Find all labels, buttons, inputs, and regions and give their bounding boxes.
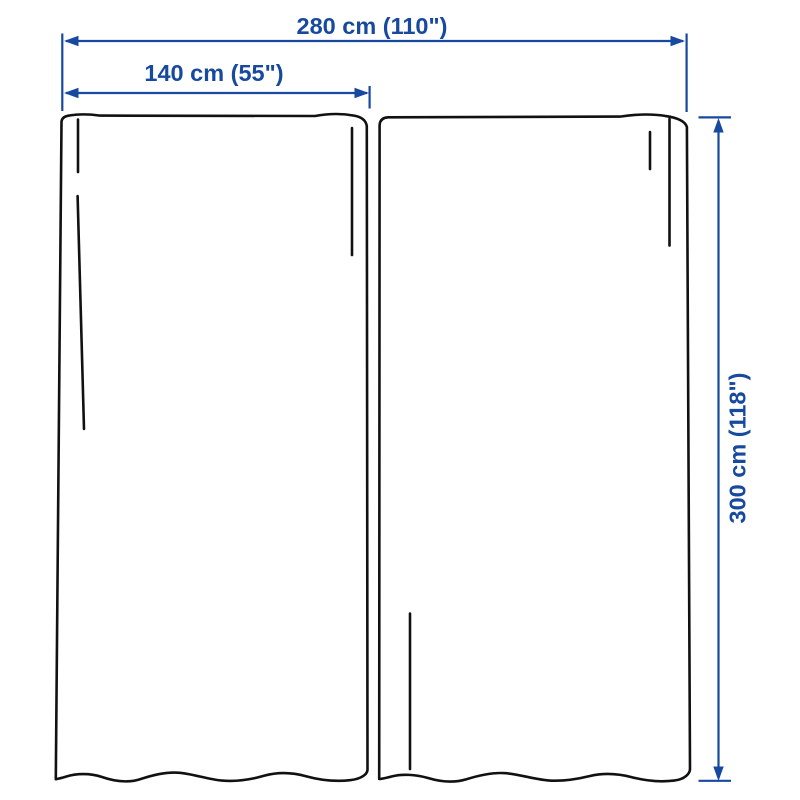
arrowhead-up-icon	[713, 118, 723, 133]
right-curtain-panel-outline	[379, 115, 690, 782]
left-panel-fold-line-long	[78, 196, 84, 429]
panel-width-dimension	[64, 86, 370, 109]
arrowhead-right-icon	[671, 36, 686, 46]
curtain-dimension-diagram: 280 cm (110") 140 cm (55") 300 cm (118")	[0, 0, 800, 800]
left-curtain-panel-outline	[56, 114, 368, 781]
arrowhead-down-icon	[713, 767, 723, 782]
left-curtain-panel	[56, 114, 368, 781]
arrowhead-right-icon	[355, 88, 370, 98]
right-curtain-panel	[379, 115, 690, 782]
arrowhead-left-icon	[64, 88, 79, 98]
arrowhead-left-icon	[64, 36, 79, 46]
height-label: 300 cm (118")	[725, 373, 751, 524]
total-width-label: 280 cm (110")	[297, 13, 448, 39]
panel-width-label: 140 cm (55")	[144, 60, 283, 86]
